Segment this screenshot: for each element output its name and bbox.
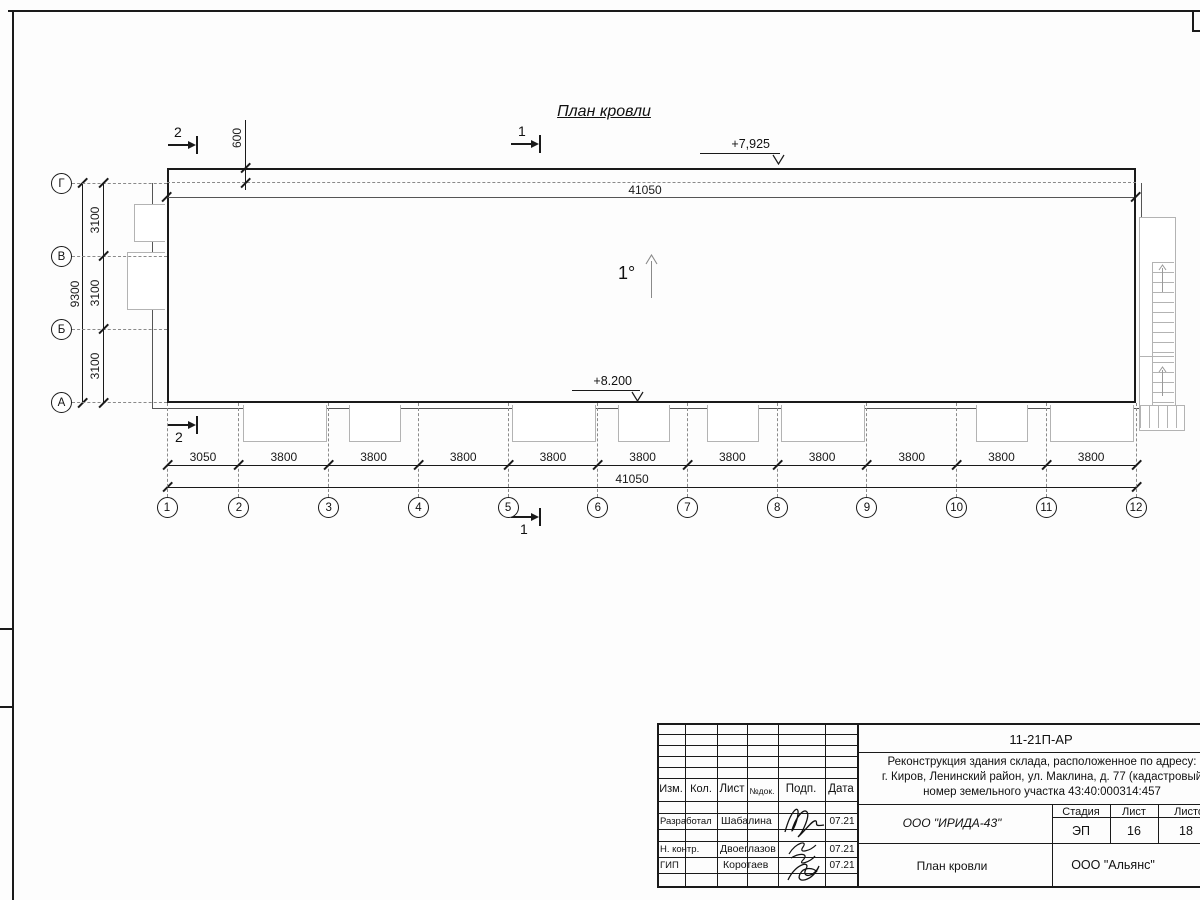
person-name: Шабалина — [721, 815, 772, 827]
lower-level-outline — [134, 204, 165, 242]
dimension-label: 3100 — [88, 203, 102, 237]
axis-circle: 10 — [946, 497, 967, 518]
signature-icon — [781, 838, 827, 884]
stair-treads — [1153, 262, 1174, 404]
axis-extension-line — [777, 403, 778, 497]
axis-circle: 2 — [228, 497, 249, 518]
project-description-line: г. Киров, Ленинский район, ул. Маклина, … — [882, 771, 1200, 783]
dimension-label-overhang: 600 — [230, 123, 244, 153]
up-arrow-icon — [645, 254, 658, 265]
axis-circle: 4 — [408, 497, 429, 518]
section-arrowhead-icon — [531, 140, 539, 148]
signature-icon — [780, 802, 826, 840]
company-name: ООО "Альянс" — [1071, 858, 1155, 872]
canopy-outline — [976, 405, 1028, 442]
drawing-name: План кровли — [917, 859, 988, 873]
date-value: 07.21 — [829, 860, 854, 871]
col-header-list: Лист — [720, 783, 745, 795]
section-2-label: 2 — [174, 124, 182, 140]
document-number: 11-21П-АР — [1009, 732, 1072, 747]
dimension-label: 3800 — [254, 450, 314, 464]
axis-circle: 8 — [767, 497, 788, 518]
axis-extension-line — [597, 403, 598, 497]
dimension-label: 3800 — [971, 450, 1031, 464]
designer-org: ООО "ИРИДА-43" — [903, 816, 1002, 830]
axis-circle: 3 — [318, 497, 339, 518]
axis-circle: Г — [51, 173, 72, 194]
canopy-outline — [781, 405, 865, 442]
up-arrow-icon — [1158, 264, 1167, 271]
col-header-data: Дата — [828, 783, 853, 795]
axis-extension-line — [72, 402, 167, 403]
axis-circle: 12 — [1126, 497, 1147, 518]
section-1-label: 1 — [518, 123, 526, 139]
person-name: Двоеглазов — [720, 843, 776, 855]
section-cut-bar — [539, 135, 541, 153]
col-header-kol: Кол. — [690, 783, 712, 795]
left-total-dim-line — [82, 183, 83, 403]
axis-extension-line — [1136, 403, 1137, 497]
section-2-label: 2 — [175, 429, 183, 445]
col-header-izm: Изм. — [659, 783, 683, 795]
axis-circle: Б — [51, 319, 72, 340]
axis-extension-line — [956, 403, 957, 497]
binding-mark — [0, 706, 12, 708]
top-dimension-line — [167, 197, 1136, 198]
axis-extension-line — [72, 329, 167, 330]
elevation-label-top: +7,925 — [700, 137, 770, 151]
dimension-label: 3800 — [882, 450, 942, 464]
bottom-total-dim-line — [167, 487, 1136, 488]
axis-extension-line — [238, 403, 239, 497]
section-arrowhead-icon — [188, 421, 196, 429]
section-arrowhead-icon — [188, 141, 196, 149]
axis-extension-line — [1046, 403, 1047, 497]
dimension-label: 3800 — [1061, 450, 1121, 464]
dimension-label: 3800 — [702, 450, 762, 464]
axis-circle: 6 — [587, 497, 608, 518]
elevation-leader-line — [700, 153, 780, 154]
stair-treads — [1140, 406, 1182, 428]
stair-up-arrow-icon — [1162, 370, 1163, 396]
drawing-sheet: { "drawing": { "title": "План кровли", "… — [0, 0, 1200, 900]
elevation-leader-line — [572, 390, 640, 391]
down-arrow-icon — [772, 154, 785, 165]
left-segment-dim-line — [103, 183, 104, 403]
up-arrow-icon — [1158, 366, 1167, 373]
page-title: План кровли — [544, 103, 664, 121]
dimension-label-left-total: 9300 — [68, 277, 82, 311]
role-label: Разработал — [660, 816, 712, 827]
axis-circle: 7 — [677, 497, 698, 518]
dimension-label: 3800 — [523, 450, 583, 464]
bottom-dim-line — [167, 465, 1136, 466]
axis-extension-line — [418, 403, 419, 497]
canopy-outline — [707, 405, 759, 442]
axis-extension-line — [687, 403, 688, 497]
frame-left-line — [12, 10, 14, 900]
canopy-outline — [618, 405, 670, 442]
sheet-header: Лист — [1122, 806, 1146, 818]
project-description-line: номер земельного участка 43:40:000314:45… — [923, 786, 1161, 798]
dimension-label: 3800 — [792, 450, 852, 464]
axis-extension-line — [72, 256, 167, 257]
axis-extension-line — [866, 403, 867, 497]
col-header-ndok: №док. — [750, 786, 775, 796]
sheet-number: 16 — [1127, 824, 1141, 838]
axis-extension-line — [508, 403, 509, 497]
dimension-label: 3800 — [613, 450, 673, 464]
slope-arrow-line — [651, 261, 652, 298]
section-1-label: 1 — [520, 521, 528, 537]
stair-up-arrow-icon — [1162, 268, 1163, 292]
canopy-outline — [349, 405, 401, 442]
corner-stamp-line — [1192, 30, 1200, 32]
canopy-outline — [1050, 405, 1134, 442]
down-arrow-icon — [631, 391, 644, 402]
sheets-header: Листов — [1174, 806, 1200, 818]
axis-circle: 5 — [498, 497, 519, 518]
date-value: 07.21 — [829, 844, 854, 855]
corner-stamp-line — [1192, 12, 1194, 30]
axis-circle: А — [51, 392, 72, 413]
dimension-label: 3100 — [88, 276, 102, 310]
axis-extension-line — [167, 403, 168, 497]
elevation-label-bottom: +8.200 — [572, 374, 632, 388]
canopy-outline — [512, 405, 596, 442]
dimension-label: 3100 — [88, 349, 102, 383]
person-name: Коротаев — [723, 859, 768, 871]
dimension-label-total-top: 41050 — [628, 183, 661, 197]
dimension-label: 3800 — [344, 450, 404, 464]
slope-label: 1° — [618, 263, 635, 284]
section-arrowhead-icon — [531, 513, 539, 521]
stage-value: ЭП — [1072, 824, 1090, 838]
dimension-label-total-bottom: 41050 — [615, 472, 648, 486]
lower-level-outline — [127, 252, 165, 310]
project-description-line: Реконструкция здания склада, расположенн… — [887, 756, 1196, 768]
canopy-outline — [243, 405, 327, 442]
frame-top-line — [8, 10, 1200, 12]
axis-extension-line — [72, 183, 167, 184]
section-cut-bar — [539, 508, 541, 526]
axis-circle: В — [51, 246, 72, 267]
section-cut-bar — [196, 416, 198, 434]
date-value: 07.21 — [829, 816, 854, 827]
section-cut-bar — [196, 136, 198, 154]
axis-circle: 9 — [856, 497, 877, 518]
stair-landing-line — [1139, 356, 1174, 357]
dimension-label: 3050 — [173, 450, 233, 464]
dimension-label: 3800 — [433, 450, 493, 464]
stage-header: Стадия — [1062, 806, 1100, 818]
col-header-podp: Подп. — [786, 783, 817, 795]
role-label: ГИП — [660, 860, 679, 871]
sheets-total: 18 — [1179, 824, 1193, 838]
axis-circle: 1 — [157, 497, 178, 518]
axis-circle: 11 — [1036, 497, 1057, 518]
role-label: Н. контр. — [660, 844, 699, 855]
binding-mark — [0, 628, 12, 630]
axis-extension-line — [328, 403, 329, 497]
